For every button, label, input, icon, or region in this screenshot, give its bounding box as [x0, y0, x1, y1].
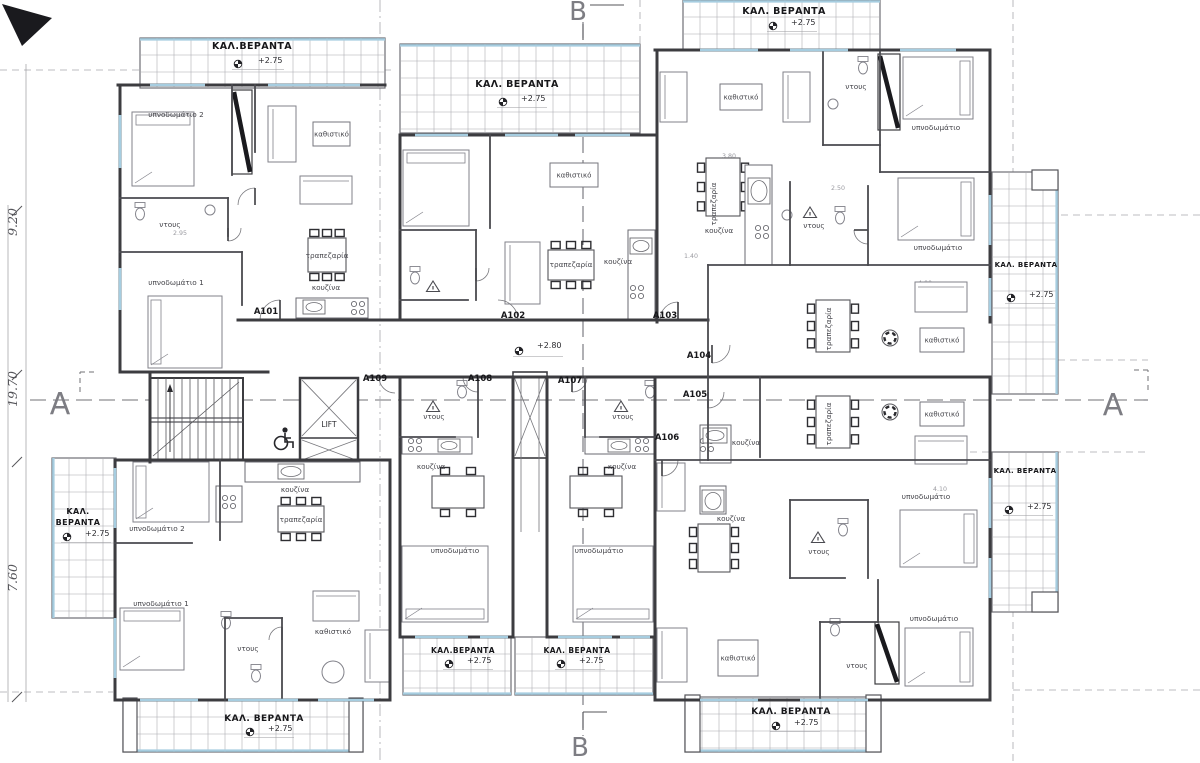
room-label: καθιστικό — [724, 94, 759, 102]
veranda-label: ΚΑΛ.ΒΕΡΑΝΤΑ — [431, 646, 495, 655]
level-label: +2.75 — [258, 56, 283, 65]
veranda-label: ΒΕΡΑΝΤΑ — [56, 518, 101, 527]
door-swing — [854, 230, 868, 244]
chair — [551, 282, 560, 289]
room-label: κουζίνα — [312, 283, 341, 292]
chair — [441, 510, 450, 517]
wheelchair-icon — [282, 427, 287, 432]
room-label: υπνοδωμάτιο 1 — [148, 278, 203, 287]
unit-label: A108 — [468, 374, 492, 384]
chair — [732, 528, 739, 537]
dimension-tick — [12, 692, 22, 702]
sofa — [313, 591, 359, 621]
dimension-label: 19.70 — [5, 371, 20, 407]
room-label: υπνοδωμάτιο — [902, 492, 951, 501]
room-label: υπνοδωμάτιο 2 — [129, 524, 184, 533]
veranda-label: ΚΑΛ. ΒΕΡΑΝΤΑ — [543, 646, 610, 655]
room-label: ντους — [159, 220, 180, 229]
level-label: +2.75 — [794, 718, 819, 727]
chair — [297, 534, 306, 541]
column-post — [123, 698, 137, 752]
room-label: καθιστικό — [315, 627, 352, 636]
door-swing — [712, 345, 730, 363]
floor-plan-svg: 9.2019.707.603.502.503.801.403.953.102.9… — [0, 0, 1200, 763]
lift-label: LIFT — [321, 420, 337, 429]
north-arrow-icon — [2, 4, 52, 46]
section-letter: A — [1103, 388, 1124, 423]
room-label: τραπεζαρία — [280, 515, 323, 524]
chair — [808, 304, 815, 313]
room-label: τραπεζαρία — [824, 402, 833, 445]
chair — [335, 274, 344, 281]
unit-label: A101 — [254, 307, 278, 317]
sofa — [915, 282, 967, 312]
veranda-label: ΚΑΛ.ΒΕΡΑΝΤΑ — [212, 41, 292, 52]
level-label: +2.80 — [537, 341, 562, 350]
room-label: ντους — [808, 547, 829, 556]
column-post — [866, 695, 881, 752]
section-letter: B — [569, 0, 587, 27]
dining-table — [816, 300, 850, 352]
room-label: κουζίνα — [281, 485, 310, 494]
column-post — [349, 698, 363, 752]
column-post — [685, 695, 700, 752]
chair — [281, 534, 290, 541]
chair — [808, 339, 815, 348]
room-label: τραπεζαρία — [709, 182, 718, 225]
room-label: καθιστικό — [314, 131, 349, 139]
chair — [297, 498, 306, 505]
room-label: υπνοδωμάτιο — [910, 614, 959, 623]
door-swing — [269, 627, 282, 640]
toilet-tank — [838, 519, 848, 524]
level-label: +2.75 — [85, 529, 110, 538]
chair — [310, 230, 319, 237]
level-label: +2.75 — [521, 94, 546, 103]
chair — [732, 560, 739, 569]
column-post — [1032, 170, 1058, 190]
chair — [852, 304, 859, 313]
door-swing — [238, 188, 255, 205]
dimension-tick — [12, 457, 22, 467]
chair — [281, 498, 290, 505]
toilet — [836, 212, 845, 224]
floor-plan: 9.2019.707.603.502.503.801.403.953.102.9… — [0, 0, 1200, 763]
room-label: υπνοδωμάτιο — [575, 546, 624, 555]
dimension-label: 7.60 — [5, 564, 20, 592]
dining-table — [570, 476, 622, 508]
chair — [808, 400, 815, 409]
room-label: τραπεζαρία — [550, 260, 593, 269]
unit-label: A106 — [655, 433, 679, 443]
sofa — [657, 628, 687, 682]
veranda-label: ΚΑΛ. — [66, 507, 89, 516]
door-swing — [476, 268, 489, 281]
chair — [605, 510, 614, 517]
chair — [808, 435, 815, 444]
unit-label: A104 — [687, 351, 711, 361]
chair — [312, 498, 321, 505]
chair — [808, 418, 815, 427]
room-label: κουζίνα — [705, 226, 734, 235]
unit-label: A103 — [653, 311, 677, 321]
toilet-tank — [251, 665, 261, 670]
bed — [148, 296, 222, 368]
toilet-tank — [835, 207, 845, 212]
duct-shaft-line — [513, 374, 545, 456]
toilet — [839, 524, 848, 536]
level-label: +2.75 — [268, 724, 293, 733]
column-post — [1032, 592, 1058, 612]
sofa — [660, 72, 687, 122]
bed — [898, 178, 974, 240]
room-label: ντους — [803, 221, 824, 230]
chair — [698, 202, 705, 211]
level-label: +2.75 — [1027, 502, 1052, 511]
room-label: ντους — [846, 661, 867, 670]
chair — [467, 510, 476, 517]
room-label: καθιστικό — [721, 655, 756, 663]
chair — [467, 468, 476, 475]
section-letter: B — [571, 733, 589, 763]
level-label: +2.75 — [791, 18, 816, 27]
veranda-label: ΚΑΛ. ΒΕΡΑΝΤΑ — [475, 79, 559, 90]
bed — [403, 150, 469, 226]
bed — [402, 546, 488, 622]
room-label: υπνοδωμάτιο — [914, 243, 963, 252]
door-swing — [228, 228, 241, 241]
toilet — [646, 386, 655, 398]
toilet — [831, 624, 840, 636]
room-label: ντους — [612, 412, 633, 421]
dining-table — [698, 524, 730, 572]
section-letter: A — [50, 387, 71, 422]
room-label: κουζίνα — [604, 257, 633, 266]
veranda-label: ΚΑΛ. ΒΕΡΑΝΤΑ — [224, 714, 303, 724]
chair — [698, 163, 705, 172]
veranda-label: ΚΑΛ. ΒΕΡΑΝΤΑ — [751, 707, 830, 717]
level-label: +2.75 — [579, 656, 604, 665]
chair — [852, 339, 859, 348]
room-label: υπνοδωμάτιο 2 — [148, 110, 203, 119]
dimension-small-label: 1.40 — [684, 253, 698, 260]
sofa — [268, 106, 296, 162]
unit-label: A102 — [501, 311, 525, 321]
toilet-tank — [410, 267, 420, 272]
room-label: ντους — [237, 644, 258, 653]
room-label: κουζίνα — [732, 438, 761, 447]
chair — [310, 274, 319, 281]
round-table — [322, 661, 344, 683]
room-label: κουζίνα — [717, 514, 746, 523]
room-label: καθιστικό — [557, 172, 592, 180]
bed — [133, 462, 209, 522]
bed — [132, 112, 194, 186]
chair — [567, 242, 576, 249]
room-label: κουζίνα — [608, 462, 637, 471]
chair — [808, 322, 815, 331]
level-label: +2.75 — [467, 656, 492, 665]
wash-basin — [205, 205, 215, 215]
toilet — [136, 208, 145, 220]
room-label: τραπεζαρία — [824, 307, 833, 350]
veranda — [685, 697, 881, 752]
bed — [120, 608, 184, 670]
toilet — [458, 386, 467, 398]
room-label: καθιστικό — [925, 337, 960, 345]
toilet-tank — [135, 203, 145, 208]
duct-shaft-line — [515, 374, 547, 456]
bed — [903, 57, 973, 119]
sofa — [365, 630, 391, 682]
dimension-label: 9.20 — [5, 208, 20, 236]
sofa — [783, 72, 810, 122]
dimension-small-label: 2.95 — [173, 230, 187, 237]
toilet — [859, 62, 868, 74]
chair — [852, 322, 859, 331]
chair — [690, 560, 697, 569]
wash-basin — [828, 99, 838, 109]
room-label: ντους — [845, 82, 866, 91]
chair — [690, 544, 697, 553]
unit-label: A109 — [363, 374, 387, 384]
toilet-tank — [858, 57, 868, 62]
chair — [323, 230, 332, 237]
chair — [852, 435, 859, 444]
chair — [732, 544, 739, 553]
veranda — [992, 172, 1058, 394]
level-symbol — [515, 351, 519, 355]
chair — [335, 230, 344, 237]
level-label: +2.75 — [1029, 290, 1054, 299]
room-label: υπνοδωμάτιο — [912, 123, 961, 132]
chair — [312, 534, 321, 541]
toilet — [411, 272, 420, 284]
dimension-small-label: 2.50 — [831, 185, 845, 192]
chair — [698, 183, 705, 192]
chair — [567, 282, 576, 289]
bed — [905, 628, 973, 686]
room-label: ντους — [423, 412, 444, 421]
room-label: κουζίνα — [417, 462, 446, 471]
level-symbol — [519, 347, 523, 351]
sofa — [300, 176, 352, 204]
dining-table — [432, 476, 484, 508]
room-label: υπνοδωμάτιο — [431, 546, 480, 555]
dining-table — [816, 396, 850, 448]
bed — [573, 546, 653, 622]
room-label: καθιστικό — [925, 411, 960, 419]
chair — [852, 418, 859, 427]
unit-label: A105 — [683, 390, 707, 400]
unit-label: A107 — [558, 376, 582, 386]
room-label: υπνοδωμάτιο 1 — [133, 599, 188, 608]
toilet — [252, 670, 261, 682]
chair — [551, 242, 560, 249]
veranda-label: ΚΑΛ. ΒΕΡΑΝΤΑ — [994, 467, 1057, 475]
chair — [323, 274, 332, 281]
toilet-tank — [221, 612, 231, 617]
duct-shaft — [513, 372, 547, 458]
chair — [690, 528, 697, 537]
chair — [852, 400, 859, 409]
room-label: τραπεζαρία — [306, 251, 349, 260]
veranda-label: ΚΑΛ. ΒΕΡΑΝΤΑ — [995, 261, 1058, 269]
veranda-label: ΚΑΛ. ΒΕΡΑΝΤΑ — [742, 6, 826, 17]
